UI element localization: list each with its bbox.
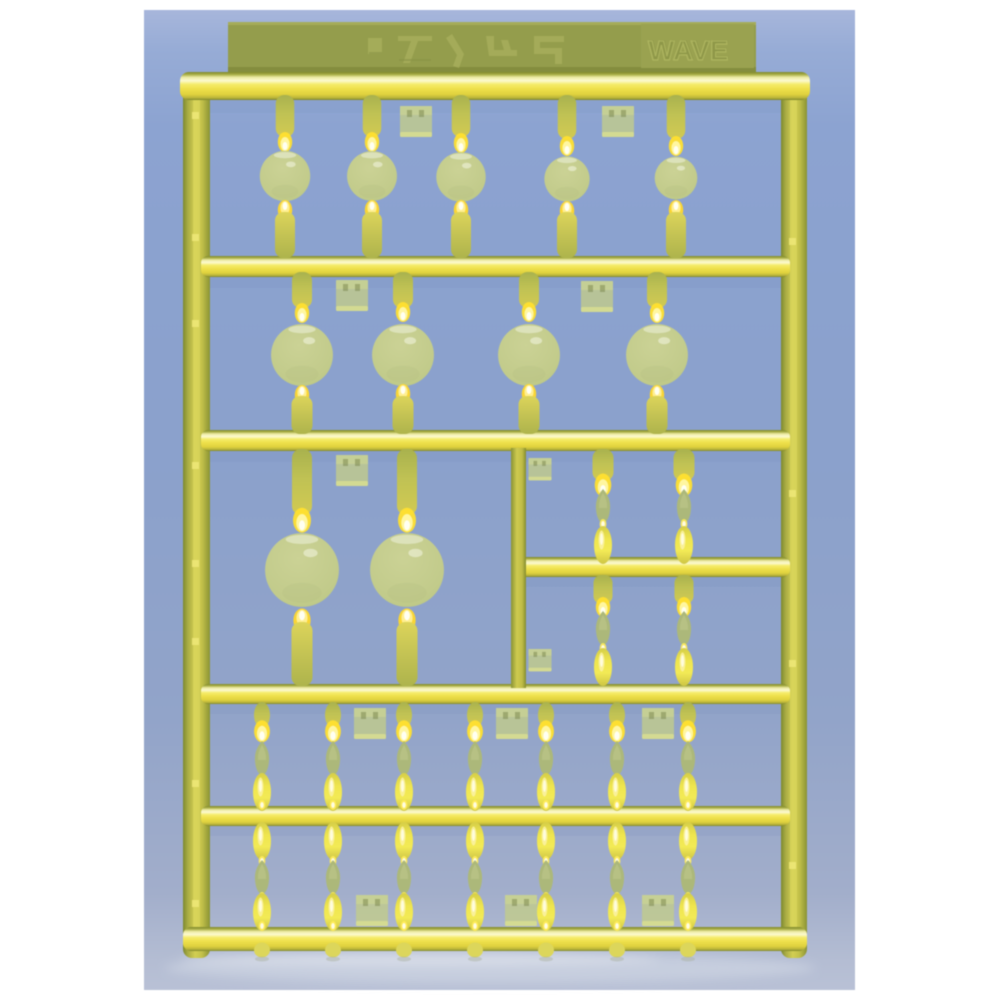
svg-text:WAVE: WAVE [648, 35, 728, 66]
